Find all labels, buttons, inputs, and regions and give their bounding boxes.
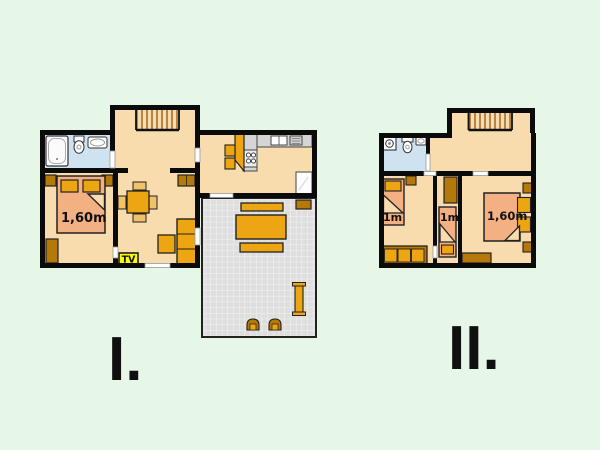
plan1-chair-top bbox=[133, 182, 146, 190]
plan1-terrace-table bbox=[236, 215, 286, 239]
plan1-double-bed: 1,60m bbox=[57, 176, 107, 233]
plan1-terrace-bench-bottom bbox=[240, 243, 283, 252]
plan2-left-bed-pillow bbox=[385, 181, 401, 191]
plan2-toilet-icon bbox=[402, 137, 413, 153]
plan2-left-bed-size-label: 1m bbox=[383, 211, 402, 224]
plan1-living-cabinet bbox=[178, 175, 195, 186]
plan2-double-bed-size-label: 1,60m bbox=[487, 209, 527, 223]
plan2-dresser bbox=[462, 253, 491, 263]
plan1-pillow-2 bbox=[83, 180, 100, 192]
plan1-terrace-stool-2 bbox=[269, 319, 281, 330]
plan2-middle-bed-size-label: 1m bbox=[440, 211, 459, 224]
plan2-middle-bed-pillow bbox=[442, 245, 454, 254]
plan1-kitchen-terrace-door bbox=[210, 194, 233, 198]
floor-plans-drawing: 1,60m TV bbox=[0, 0, 600, 450]
plan2-left-bed: 1m bbox=[382, 179, 404, 225]
plan-1: 1,60m TV bbox=[40, 105, 317, 394]
plan1-chair-left bbox=[118, 196, 126, 209]
plan2-stairs-icon bbox=[469, 112, 513, 130]
plan2-sofa bbox=[381, 246, 427, 265]
plan1-dining-table bbox=[127, 191, 149, 213]
floor-plan-canvas: 1,60m TV bbox=[0, 0, 600, 450]
plan2-middle-bed: 1m bbox=[439, 207, 459, 257]
plan1-sofa bbox=[177, 219, 196, 264]
plan2-middle-wardrobe bbox=[444, 177, 457, 203]
plan1-pillow-1 bbox=[61, 180, 78, 192]
plan1-sink-icon bbox=[88, 137, 107, 148]
plan1-stairs-icon bbox=[136, 107, 179, 130]
plan1-chair-right bbox=[149, 196, 157, 209]
plan1-terrace-side-bench bbox=[293, 283, 306, 316]
plan1-kitchen-cabinet-2 bbox=[225, 158, 235, 169]
plan2-washing-machine-icon bbox=[383, 137, 396, 150]
plan-2: 1m 1m 1,60m bbox=[379, 108, 536, 383]
plan1-living-window bbox=[145, 264, 170, 268]
plan2-bathroom-door bbox=[426, 154, 430, 171]
plan1-terrace-bench-top bbox=[241, 203, 283, 211]
plan1-armchair bbox=[158, 235, 175, 253]
plan1-bathtub-icon bbox=[46, 136, 68, 166]
plan1-kitchen-sink-icon bbox=[271, 136, 287, 145]
plan2-middle-room-door bbox=[433, 246, 437, 258]
plan2-left-room-door bbox=[424, 172, 436, 176]
plan1-wardrobe bbox=[46, 239, 58, 263]
plan1-terrace-planter bbox=[296, 200, 311, 209]
plan1-numeral: I. bbox=[108, 325, 142, 394]
plan1-nightstand-left bbox=[45, 175, 56, 186]
plan1-chair-bottom bbox=[133, 214, 146, 222]
plan1-hood-icon bbox=[290, 136, 302, 145]
plan2-right-room-door bbox=[473, 172, 488, 176]
plan1-kitchen-door bbox=[195, 148, 200, 162]
plan1-bathroom-door bbox=[110, 151, 115, 168]
plan1-terrace-door bbox=[195, 228, 200, 245]
plan2-left-nightstand bbox=[406, 176, 416, 185]
plan1-fridge-icon bbox=[296, 172, 312, 195]
plan2-numeral: II. bbox=[448, 314, 500, 383]
plan1-toilet-icon bbox=[74, 136, 84, 153]
plan2-sink-icon bbox=[416, 137, 426, 145]
plan1-bedroom-door bbox=[113, 247, 118, 258]
plan1-terrace-stool-1 bbox=[247, 319, 259, 330]
plan1-kitchen-cabinet-1 bbox=[225, 145, 235, 156]
plan1-stove-icon bbox=[244, 150, 257, 167]
plan1-bed-size-label: 1,60m bbox=[61, 211, 107, 226]
